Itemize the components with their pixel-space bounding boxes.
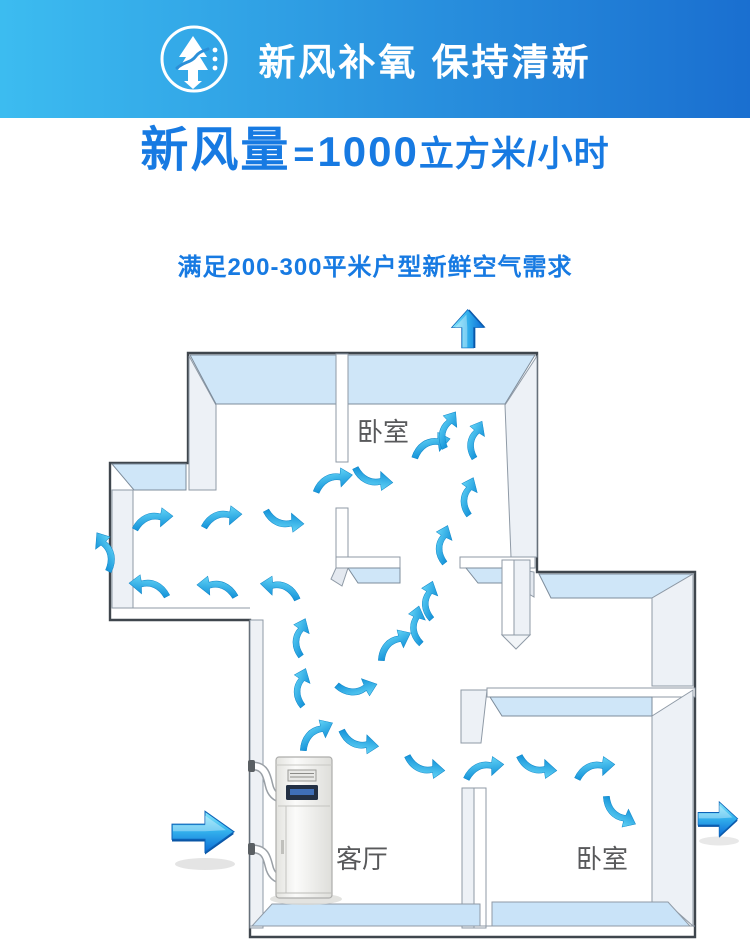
wall-face-gray [514,560,530,635]
headline-value: 1000 [317,131,418,173]
wall-face-gray [652,690,693,926]
wall-face-gray [112,490,133,608]
wall-face-blue [490,697,652,716]
room-label-bedroom-bottom: 卧室 [576,844,628,874]
wall-band [502,560,514,635]
unit-grille [288,770,316,781]
wall-face-blue [190,355,535,404]
tree-wind-icon [158,23,230,95]
bedroom-floor [492,902,690,926]
pipe-connector [248,760,255,772]
wall-band [487,688,695,697]
floorplan-canvas: 卧室 客厅 卧室 [0,300,750,949]
headline-prefix: 新风量 [140,127,290,175]
intake-arrow-left-icon [172,811,234,854]
wall-band [336,557,400,568]
header-banner: 新风补氧 保持清新 [0,0,750,118]
headline: 新风量 = 1000 立方米/小时 [0,127,750,175]
infographic-page: { "header": { "title": "新风补氧 保持清新", "ico… [0,0,750,949]
exhaust-arrow-top-icon [452,310,486,348]
arrow-shadow [699,837,739,846]
room-label-living-room: 客厅 [336,844,388,874]
header-title: 新风补氧 保持清新 [258,32,591,86]
arrow-shadow [175,858,235,870]
headline-equals: = [293,136,314,172]
floors [252,902,690,926]
wall-band [336,508,348,560]
subtitle: 满足200-300平米户型新鲜空气需求 [0,247,750,282]
wall-band [336,354,348,462]
living-room-floor [252,904,480,926]
room-label-bedroom-top: 卧室 [357,417,409,447]
headline-unit: 立方米/小时 [419,137,610,172]
unit-handle [281,840,284,854]
pipe-connector [248,843,255,855]
exhaust-arrow-right-icon [698,802,738,838]
